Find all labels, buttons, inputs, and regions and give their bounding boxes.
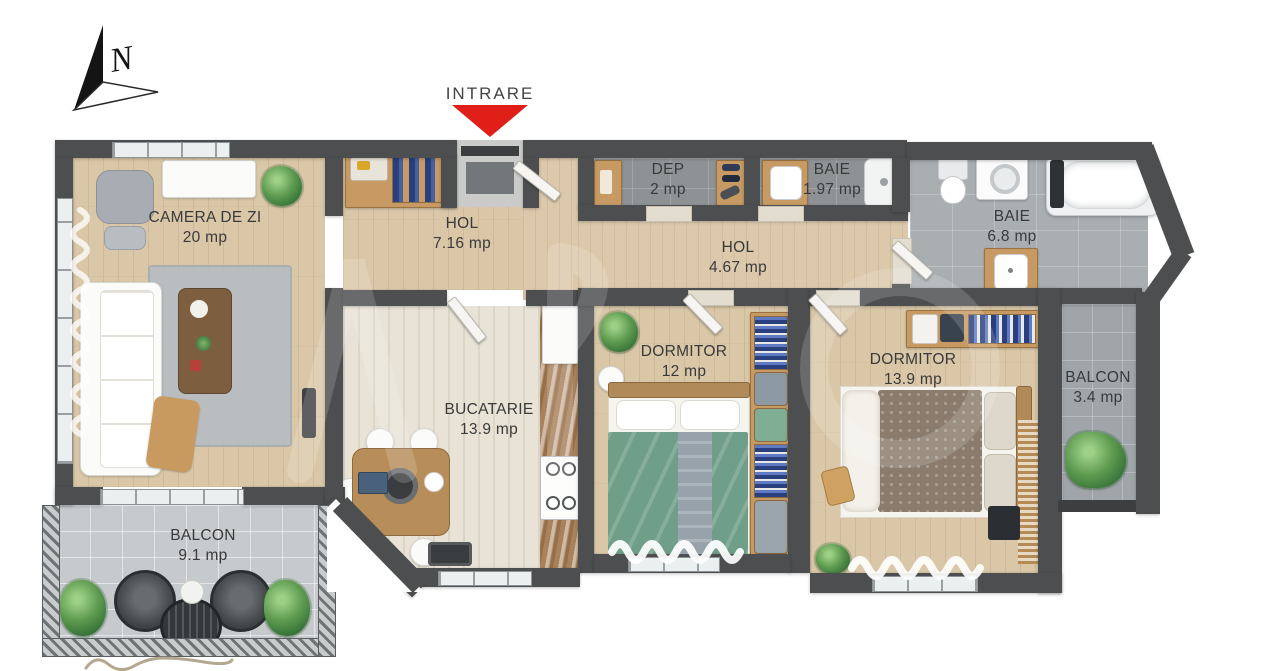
coffee-table-book bbox=[190, 360, 201, 371]
bed1-pillow-right bbox=[680, 400, 740, 430]
slat-wall-bedroom-2 bbox=[1018, 420, 1038, 564]
bed2-pillow-bottom bbox=[984, 454, 1016, 512]
bathtub-faucet bbox=[1050, 160, 1064, 208]
plant-bedroom-2 bbox=[816, 544, 850, 574]
stove-burner-4 bbox=[562, 496, 576, 510]
entrance-arrow bbox=[452, 105, 528, 137]
wall-bedroom2-right bbox=[1038, 288, 1062, 593]
fridge bbox=[542, 300, 578, 364]
room-name: BALCON bbox=[1058, 368, 1138, 388]
wall-living-kitchen bbox=[325, 288, 343, 505]
room-name: CAMERA DE ZI bbox=[145, 208, 265, 228]
wall-top-mid bbox=[523, 140, 907, 158]
balcony2-rail-left bbox=[42, 505, 60, 657]
dep-item bbox=[600, 170, 612, 194]
hall-bag bbox=[357, 161, 370, 170]
svg-text:N: N bbox=[106, 39, 138, 80]
wall-vestibule-left bbox=[441, 158, 457, 208]
wall-balcony1-top bbox=[1062, 288, 1142, 304]
balcony2-plant-left bbox=[60, 580, 106, 636]
entrance-door-slab bbox=[461, 146, 519, 156]
balcony2-table bbox=[180, 580, 204, 604]
wall-living-divider-stub bbox=[325, 158, 343, 216]
bed2-pillow-top bbox=[984, 392, 1016, 450]
wardrobe2-shirt-light bbox=[912, 314, 938, 344]
console-table bbox=[162, 160, 256, 198]
wardrobe2-hangers bbox=[968, 314, 1036, 344]
wall-corridor bbox=[788, 288, 810, 573]
room-label-baie-2: BAIE 6.8 mp bbox=[962, 207, 1062, 248]
wall-bath2-left-a bbox=[892, 158, 910, 212]
bed2-blanket bbox=[878, 390, 982, 512]
dep-shoes-b bbox=[722, 175, 740, 182]
coffee-table-plant bbox=[196, 336, 211, 351]
exterior-mask bbox=[1150, 126, 1266, 530]
room-name: BAIE bbox=[962, 207, 1062, 227]
vestibule-mat bbox=[466, 162, 514, 194]
floor-plan: N INTRARE CAMERA DE ZI 20 mp HOL 7.16 mp… bbox=[0, 0, 1266, 671]
balcony2-rail-right bbox=[318, 505, 336, 657]
threshold-bath-1 bbox=[758, 206, 804, 222]
stove-burner-3 bbox=[546, 496, 560, 510]
room-name: DEP bbox=[618, 160, 718, 180]
room-area: 6.8 mp bbox=[962, 227, 1062, 247]
room-area: 4.67 mp bbox=[688, 258, 788, 278]
signature-fragment bbox=[86, 658, 232, 670]
room-name: HOL bbox=[688, 238, 788, 258]
balcony1-sill bbox=[1058, 500, 1136, 512]
room-label-hol-1: HOL 7.16 mp bbox=[402, 214, 522, 255]
wall-kitchen-right bbox=[578, 288, 594, 573]
wall-dep-left bbox=[578, 158, 594, 208]
room-area: 13.9 mp bbox=[853, 370, 973, 390]
balcony2-rail-bottom bbox=[42, 638, 336, 657]
wardrobe2-shirt-dark bbox=[940, 314, 964, 342]
washing-machine-door bbox=[990, 164, 1020, 194]
room-name: HOL bbox=[402, 214, 522, 234]
room-area: 12 mp bbox=[624, 362, 744, 382]
bed1-pillow-left bbox=[616, 400, 676, 430]
wall-dep-right bbox=[744, 158, 760, 208]
stove-burner-2 bbox=[562, 462, 576, 476]
wall-kitchen-top-a bbox=[343, 290, 447, 306]
room-area: 3.4 mp bbox=[1058, 388, 1138, 408]
kitchen-sink bbox=[428, 542, 472, 566]
wall-top-right bbox=[907, 142, 1152, 160]
wall-balcony1-rail bbox=[1136, 292, 1160, 514]
wall-kitchen-top-b bbox=[526, 290, 580, 306]
coffee-table-tray bbox=[190, 300, 208, 318]
room-name: DORMITOR bbox=[853, 350, 973, 370]
room-name: DORMITOR bbox=[624, 342, 744, 362]
balcony2-plant-right bbox=[264, 580, 310, 636]
wardrobe1-shelf-3 bbox=[754, 408, 788, 442]
room-label-bucatarie: BUCATARIE 13.9 mp bbox=[429, 400, 549, 441]
wardrobe1-shelf-5 bbox=[754, 500, 788, 554]
wardrobe1-shelf-2 bbox=[754, 372, 788, 406]
room-area: 1.97 mp bbox=[782, 180, 882, 200]
room-area: 13.9 mp bbox=[429, 420, 549, 440]
room-label-dormitor-1: DORMITOR 12 mp bbox=[624, 342, 744, 383]
window-bedroom-2 bbox=[872, 576, 978, 592]
room-name: BUCATARIE bbox=[429, 400, 549, 420]
bed1-runner bbox=[678, 432, 712, 556]
plant-living bbox=[262, 166, 302, 206]
bath2-sink-tap bbox=[1008, 268, 1013, 273]
bed1-headboard bbox=[608, 382, 750, 398]
laptop bbox=[358, 472, 388, 494]
room-area: 2 mp bbox=[618, 180, 718, 200]
sofa-cushions bbox=[100, 290, 154, 468]
dep-shoes-a bbox=[722, 164, 740, 171]
balcony1-bush bbox=[1066, 432, 1126, 488]
room-label-dep: DEP 2 mp bbox=[618, 160, 718, 201]
room-name: BALCON bbox=[143, 526, 263, 546]
wardrobe1-shelf-1 bbox=[754, 316, 788, 370]
room-label-dormitor-2: DORMITOR 13.9 mp bbox=[853, 350, 973, 391]
footstool bbox=[104, 226, 146, 250]
wardrobe1-shelf-4 bbox=[754, 444, 788, 498]
room-area: 9.1 mp bbox=[143, 546, 263, 566]
balcony-door-living bbox=[100, 489, 244, 505]
room-area: 20 mp bbox=[145, 228, 265, 248]
room-label-balcon-2: BALCON 9.1 mp bbox=[143, 526, 263, 567]
wall-living-bottom-a bbox=[55, 487, 103, 505]
room-name: BAIE bbox=[782, 160, 882, 180]
room-area: 7.16 mp bbox=[402, 234, 522, 254]
dining-plate bbox=[424, 472, 444, 492]
tv-unit-bedroom-2 bbox=[988, 506, 1020, 540]
bathtub-basin bbox=[1058, 161, 1152, 209]
entrance-label: INTRARE bbox=[440, 84, 540, 104]
stove-burner-1 bbox=[546, 462, 560, 476]
window-bedroom-1 bbox=[628, 557, 720, 572]
radiator-living bbox=[302, 388, 316, 438]
wall-strip-bottom bbox=[578, 205, 908, 221]
room-label-balcon-1: BALCON 3.4 mp bbox=[1058, 368, 1138, 409]
room-label-camera-de-zi: CAMERA DE ZI 20 mp bbox=[145, 208, 265, 249]
window-left-living bbox=[57, 198, 73, 464]
window-top-living bbox=[112, 142, 230, 158]
window-kitchen bbox=[438, 571, 532, 586]
toilet-bowl bbox=[940, 176, 966, 204]
room-label-baie-1: BAIE 1.97 mp bbox=[782, 160, 882, 201]
threshold-dep bbox=[646, 206, 692, 222]
room-label-hol-2: HOL 4.67 mp bbox=[688, 238, 788, 279]
compass-north: N bbox=[74, 25, 158, 110]
